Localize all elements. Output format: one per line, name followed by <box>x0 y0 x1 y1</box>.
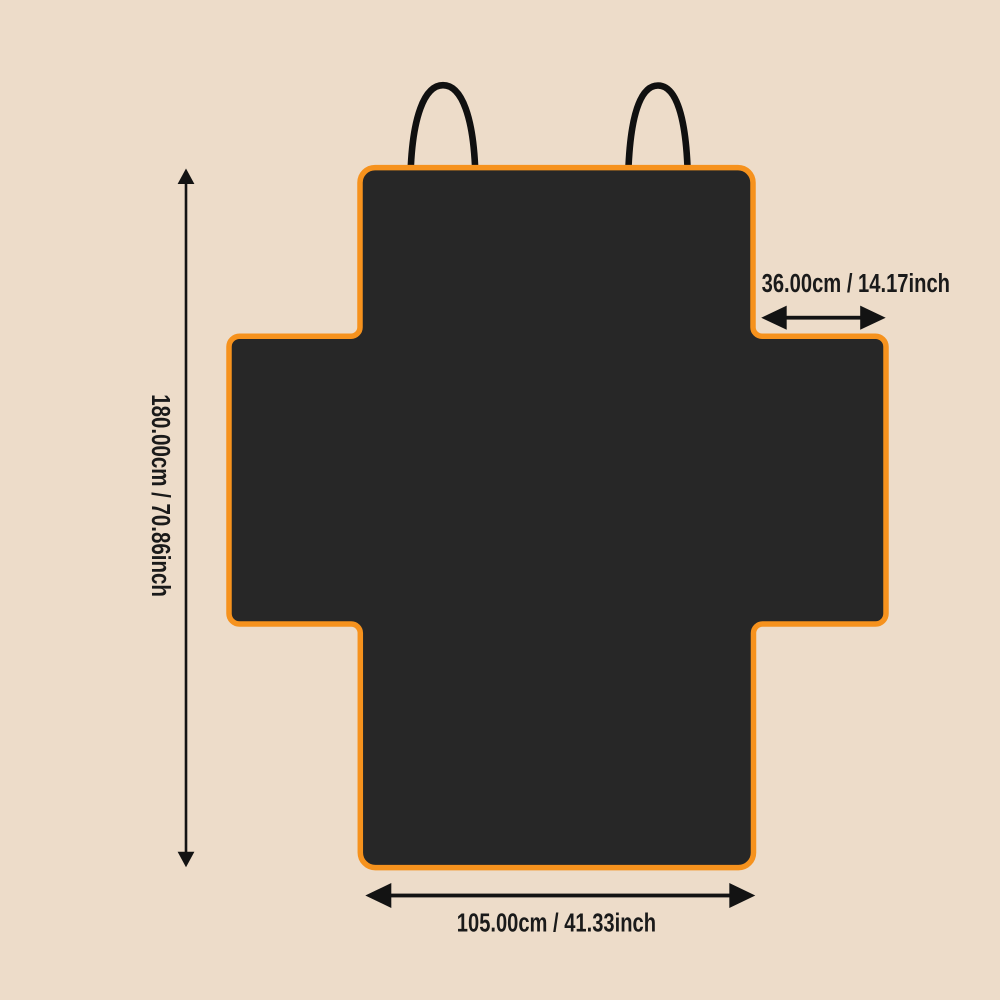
svg-text:105.00cm / 41.33inch: 105.00cm / 41.33inch <box>457 910 656 938</box>
svg-text:180.00cm / 70.86inch: 180.00cm / 70.86inch <box>146 394 174 597</box>
svg-text:36.00cm / 14.17inch: 36.00cm / 14.17inch <box>762 270 950 298</box>
